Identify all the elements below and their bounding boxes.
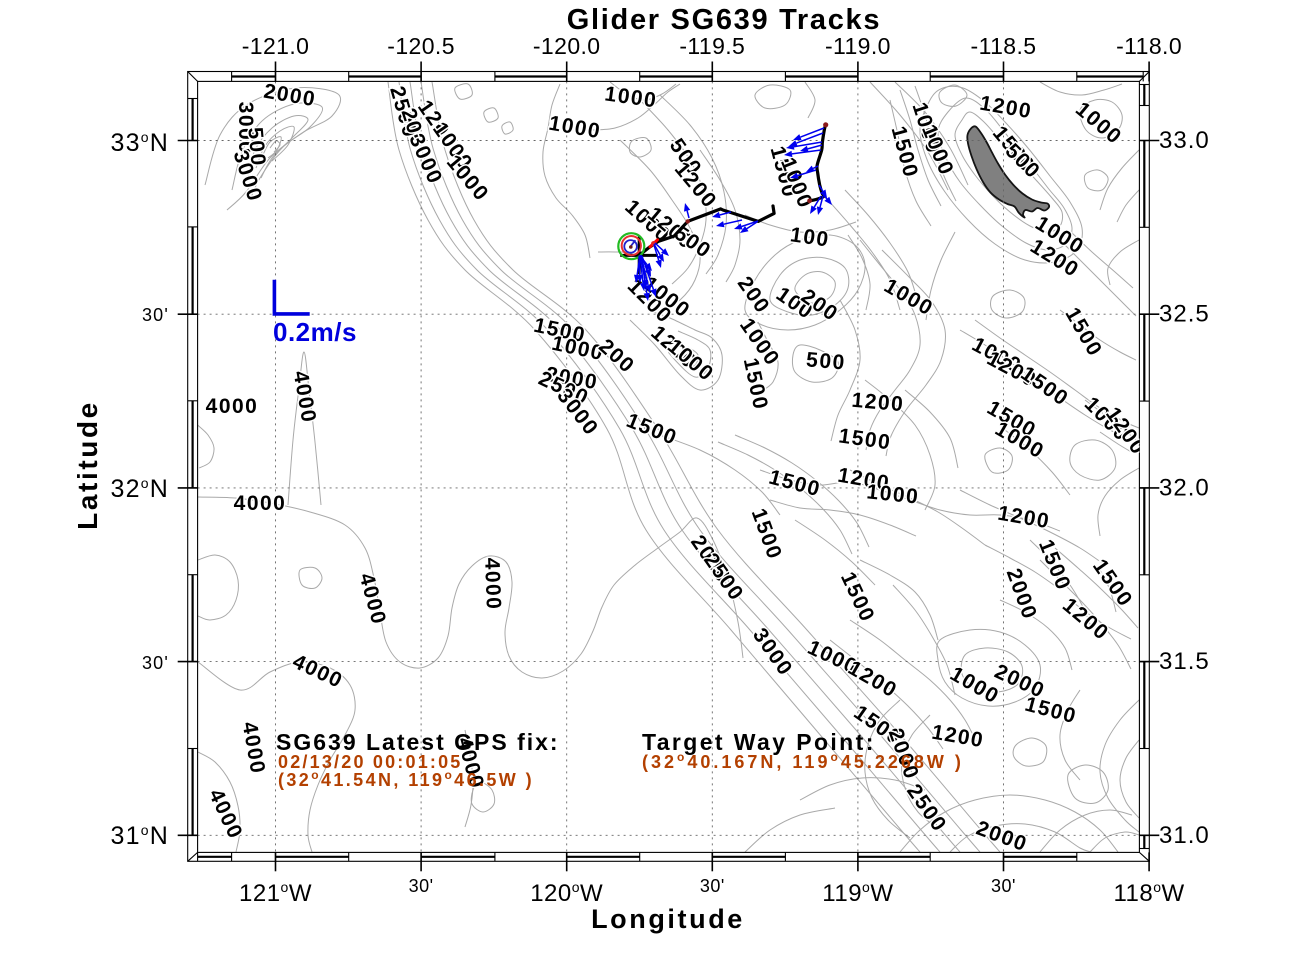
svg-text:Glider SG639 Tracks: Glider SG639 Tracks [567, 4, 881, 36]
svg-text:Latitude: Latitude [72, 400, 103, 530]
svg-text:32.0: 32.0 [1159, 474, 1210, 501]
svg-text:118oW: 118oW [1113, 879, 1184, 907]
svg-text:500: 500 [805, 348, 846, 374]
svg-text:-120.5: -120.5 [387, 33, 455, 59]
svg-text:30': 30' [700, 876, 725, 896]
svg-text:121oW: 121oW [239, 879, 312, 907]
svg-text:-119.0: -119.0 [825, 33, 891, 59]
svg-text:33.0: 33.0 [1159, 127, 1210, 154]
svg-text:30': 30' [409, 876, 434, 896]
svg-text:31oN: 31oN [111, 822, 169, 850]
svg-text:4000: 4000 [480, 557, 505, 610]
svg-text:-118.0: -118.0 [1116, 33, 1182, 59]
svg-text:120oW: 120oW [530, 879, 603, 907]
svg-text:4000: 4000 [234, 492, 287, 515]
svg-text:30': 30' [991, 876, 1016, 896]
svg-text:33oN: 33oN [111, 129, 169, 157]
svg-text:1200: 1200 [851, 389, 906, 417]
svg-text:32oN: 32oN [111, 475, 169, 503]
svg-text:31.0: 31.0 [1159, 822, 1210, 849]
svg-text:(32o40.167N, 119o45.2268W ): (32o40.167N, 119o45.2268W ) [642, 750, 964, 772]
svg-text:31.5: 31.5 [1159, 648, 1210, 675]
svg-text:-120.0: -120.0 [533, 33, 601, 59]
svg-text:02/13/20 00:01:05: 02/13/20 00:01:05 [278, 752, 463, 772]
svg-text:119oW: 119oW [822, 879, 893, 907]
svg-text:30': 30' [142, 653, 169, 673]
svg-text:30': 30' [142, 305, 169, 325]
svg-text:-119.5: -119.5 [679, 33, 745, 59]
svg-text:-121.0: -121.0 [242, 33, 310, 59]
svg-text:Longitude: Longitude [591, 904, 745, 934]
svg-text:0.2m/s: 0.2m/s [273, 317, 357, 347]
svg-text:4000: 4000 [206, 395, 259, 418]
svg-text:-118.5: -118.5 [971, 33, 1037, 59]
svg-text:32.5: 32.5 [1159, 301, 1210, 328]
